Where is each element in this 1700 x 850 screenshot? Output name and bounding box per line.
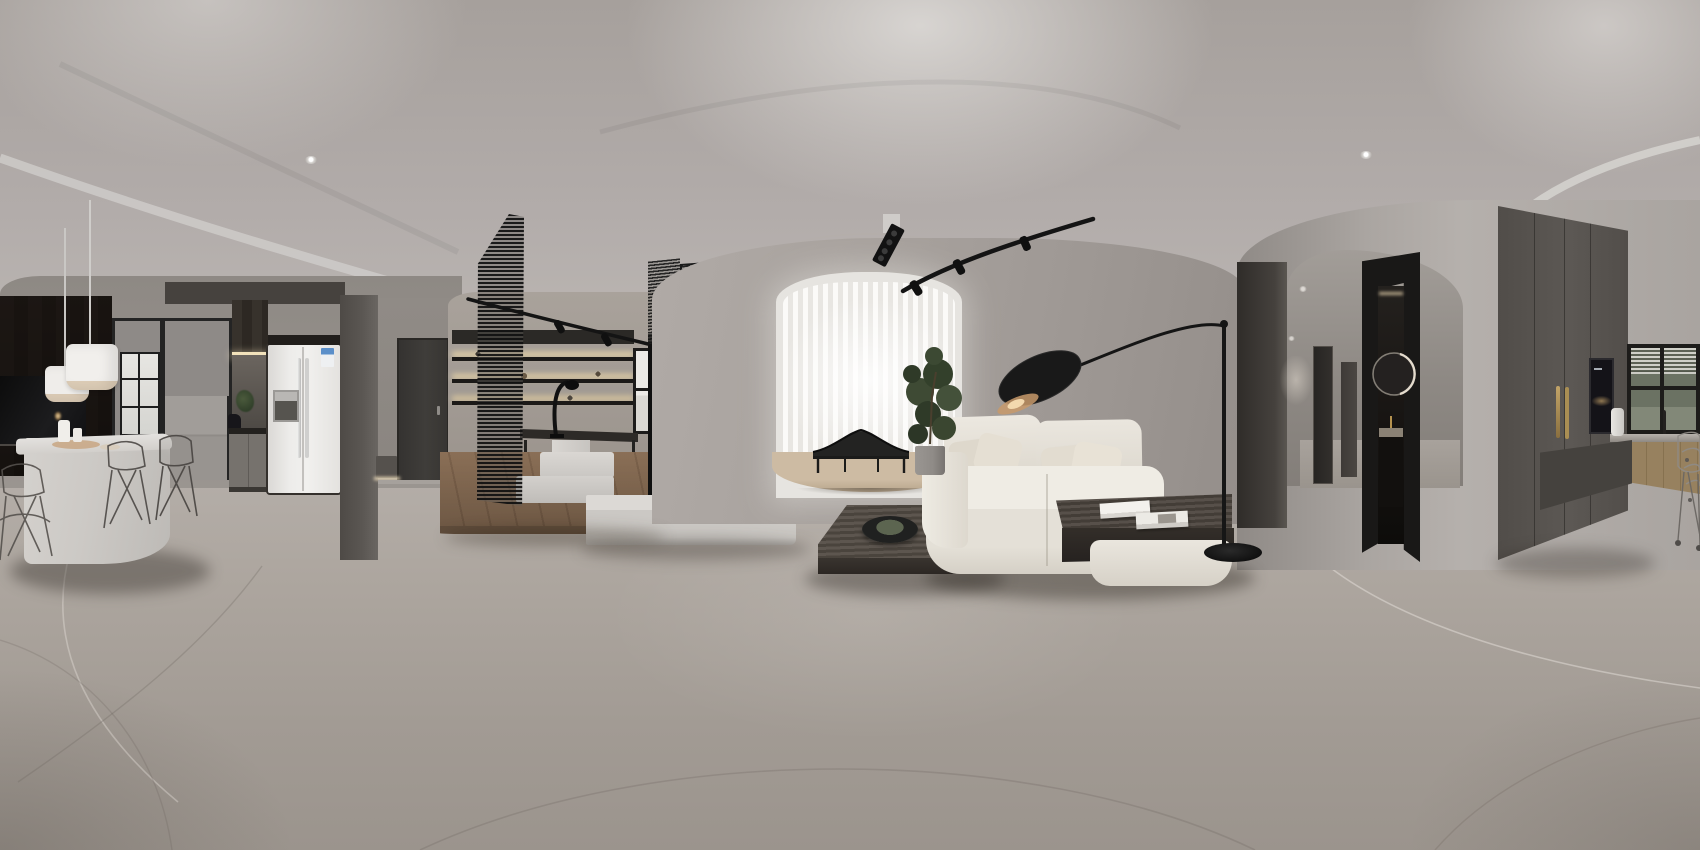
linear-spot-fixture-icon <box>872 214 905 267</box>
wire-chair <box>0 464 52 560</box>
scene-foreground-lines <box>0 0 1700 850</box>
track-light-rail <box>903 219 1093 297</box>
track-light-rail-study <box>468 299 648 348</box>
bar-wire-chairs <box>1675 432 1700 551</box>
daybed <box>813 430 909 473</box>
floor-lamp-arc-shade <box>991 320 1228 419</box>
panorama-360-interior <box>0 0 1700 850</box>
wire-chair <box>156 436 197 520</box>
wire-chair <box>104 442 150 528</box>
desk-lamp-icon <box>550 380 579 438</box>
plant-foliage <box>903 347 962 444</box>
